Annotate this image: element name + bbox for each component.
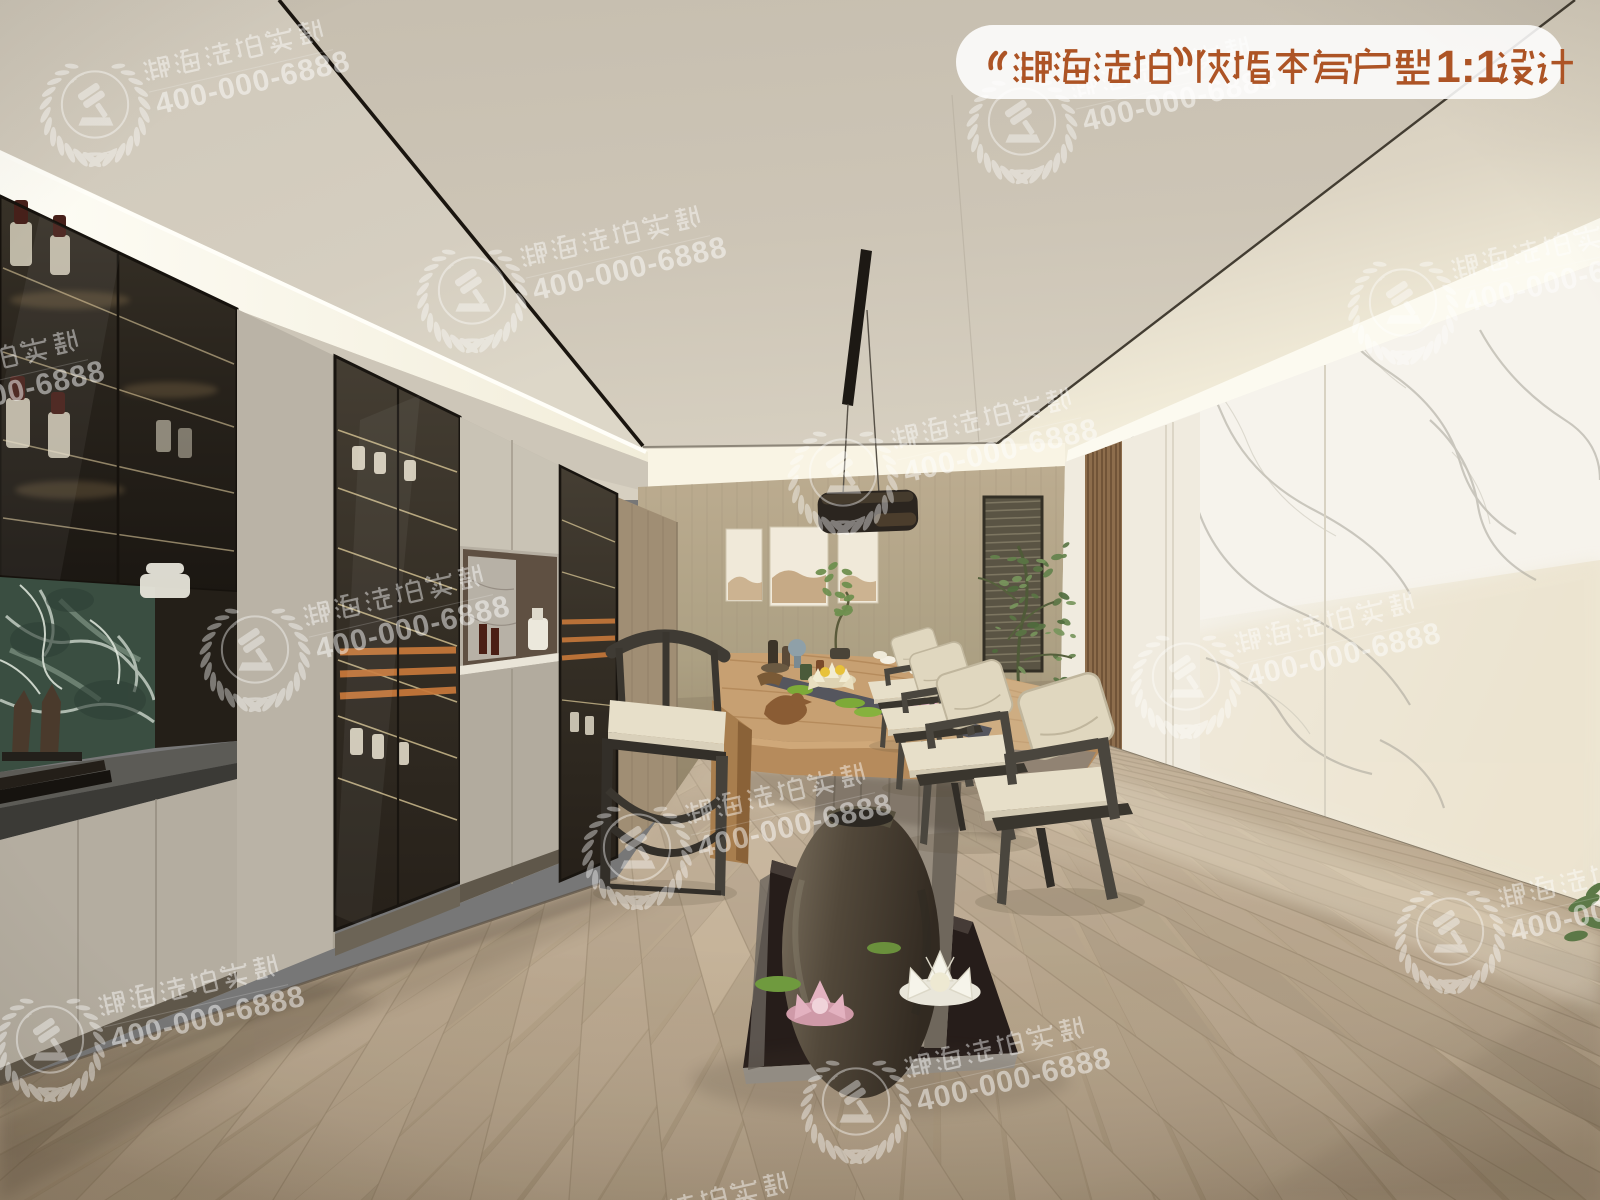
svg-text:1:1: 1:1 bbox=[1436, 41, 1501, 92]
